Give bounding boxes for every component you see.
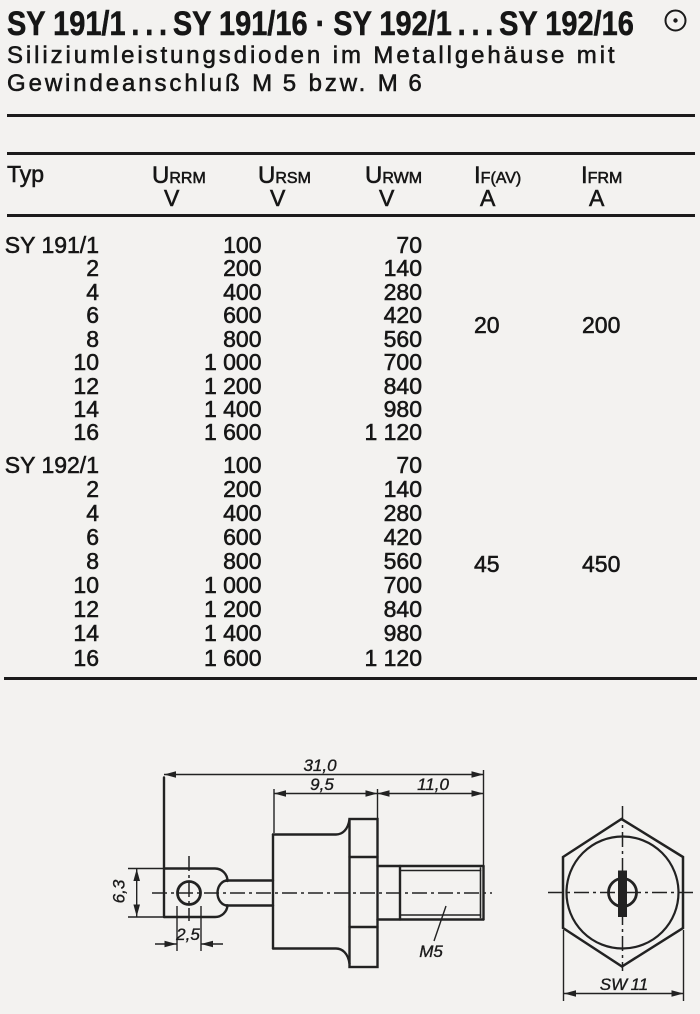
svg-text:9,5: 9,5 xyxy=(310,775,334,794)
svg-text:31,0: 31,0 xyxy=(303,756,337,775)
svg-text:M5: M5 xyxy=(419,942,443,961)
svg-text:11,0: 11,0 xyxy=(417,775,449,794)
svg-text:6,3: 6,3 xyxy=(110,879,129,903)
svg-text:SW 11: SW 11 xyxy=(600,975,648,994)
svg-text:2,5: 2,5 xyxy=(175,925,200,944)
